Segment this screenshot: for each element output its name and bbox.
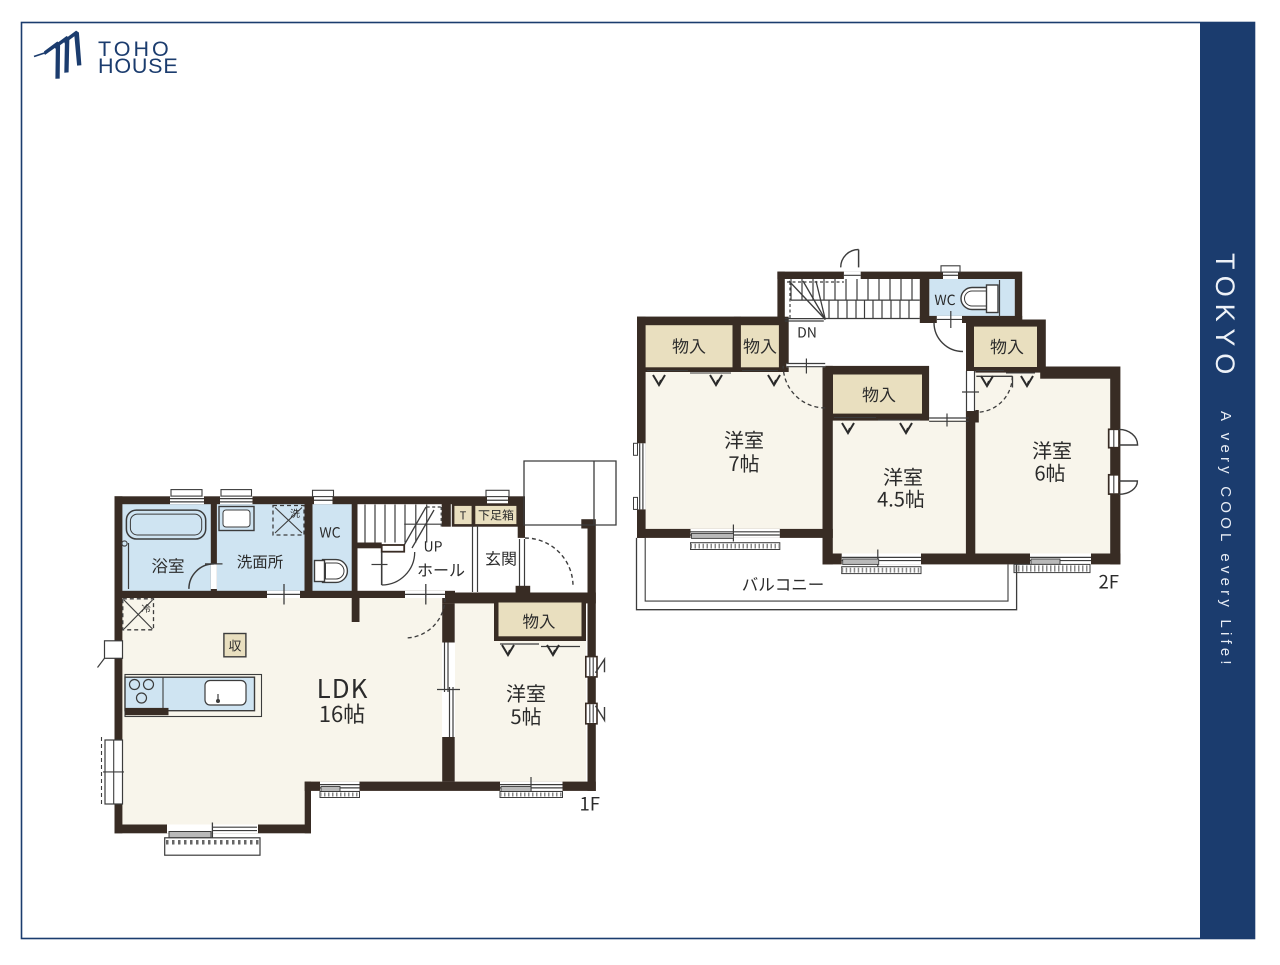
svg-text:TOKYO: TOKYO: [1210, 253, 1240, 381]
svg-text:HOUSE: HOUSE: [98, 54, 178, 78]
svg-text:A very COOL every Life!: A very COOL every Life!: [1217, 411, 1234, 669]
